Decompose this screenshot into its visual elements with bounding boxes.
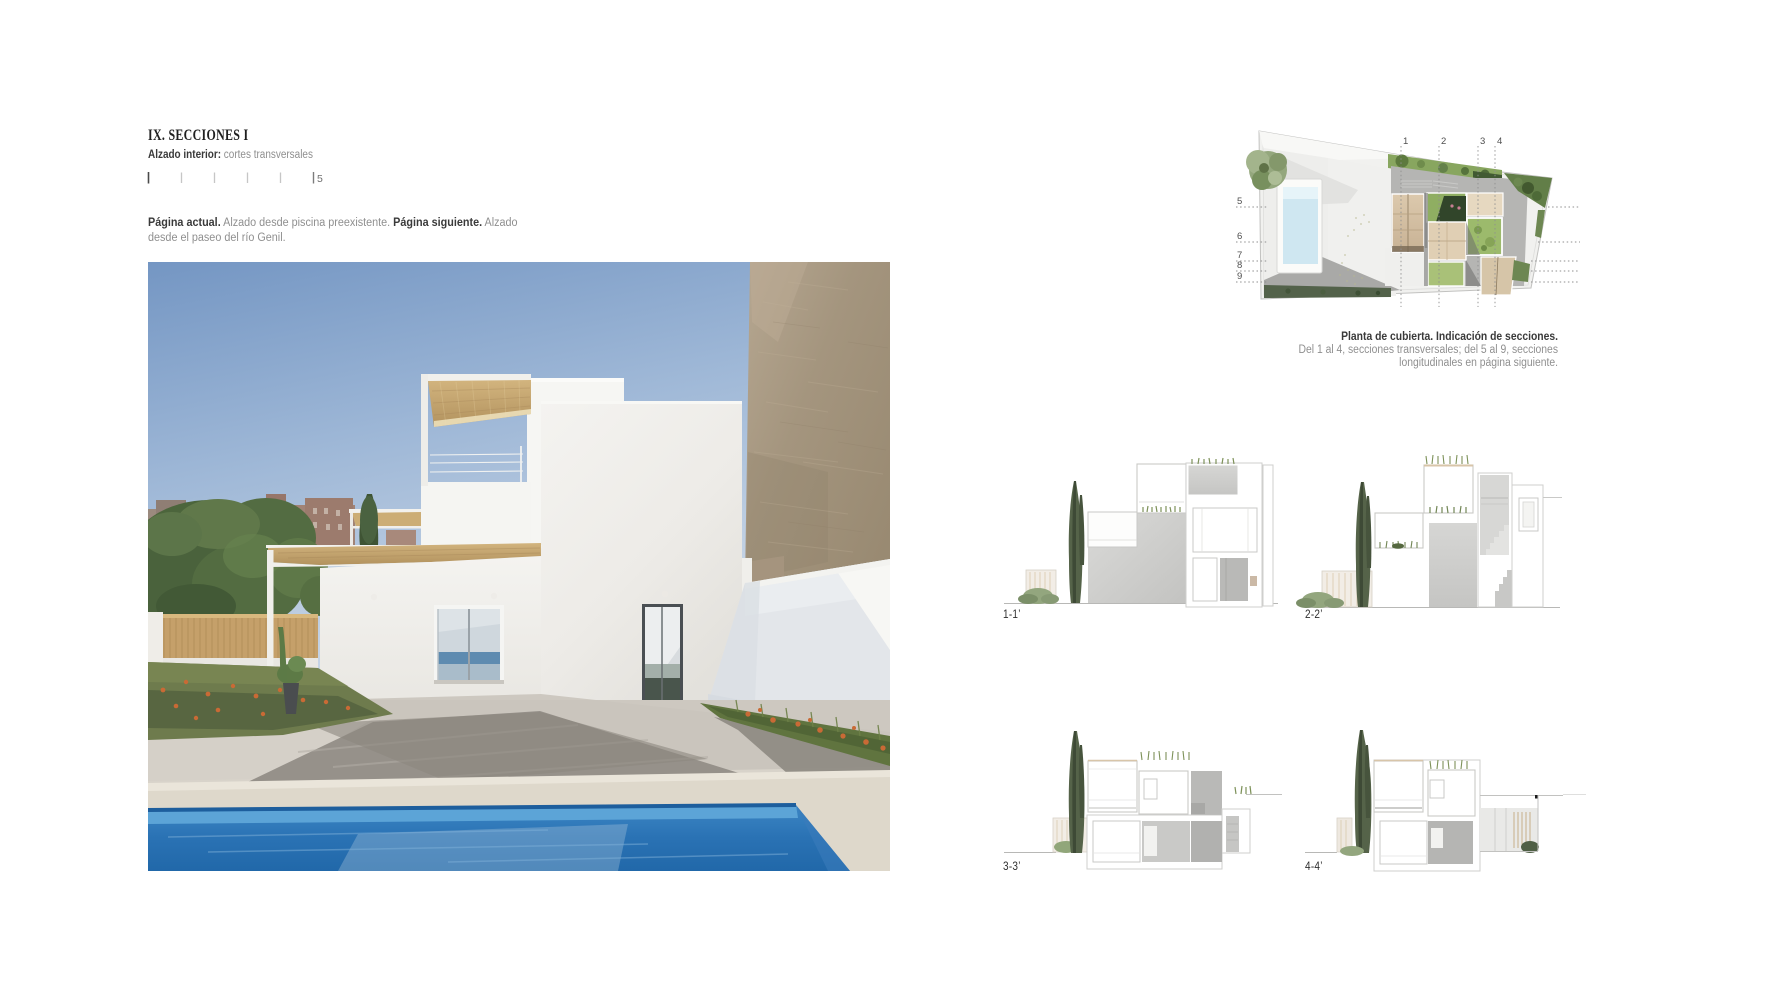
svg-text:5: 5 xyxy=(1237,196,1242,207)
svg-text:1: 1 xyxy=(1403,136,1408,147)
svg-text:3: 3 xyxy=(1480,136,1485,147)
svg-text:6: 6 xyxy=(1237,231,1242,242)
svg-text:2: 2 xyxy=(1441,136,1446,147)
svg-text:5: 5 xyxy=(317,173,323,185)
svg-text:9: 9 xyxy=(1237,271,1242,282)
svg-text:4: 4 xyxy=(1497,136,1502,147)
svg-text:8: 8 xyxy=(1237,260,1242,271)
